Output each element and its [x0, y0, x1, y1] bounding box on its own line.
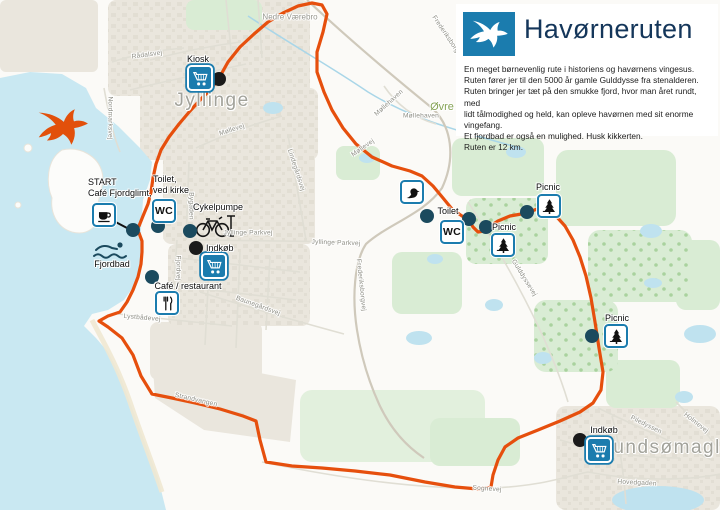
route-description-line: Ruten bringer jer tæt på den smukke fjor… — [464, 86, 714, 108]
route-logo — [463, 12, 515, 56]
route-description: En meget børnevenlig rute i historiens o… — [464, 64, 714, 154]
info-panel: Havørneruten En meget børnevenlig rute i… — [456, 4, 718, 136]
route-title: Havørneruten — [524, 14, 693, 45]
route-description-line: Ruten er 12 km. — [464, 142, 714, 153]
route-description-line: Ruten fører jer til den 5000 år gamle Gu… — [464, 75, 714, 86]
route-description-line: En meget børnevenlig rute i historiens o… — [464, 64, 714, 75]
route-description-line: Et fjordbad er også en mulighed. Husk ki… — [464, 131, 714, 142]
islet — [15, 202, 21, 208]
eagle-logo-icon — [469, 18, 509, 51]
islet — [24, 144, 32, 152]
island — [48, 149, 103, 233]
route-map-page: JyllingeGundsømagleNedre VærebroØvreRåda… — [0, 0, 720, 510]
route-description-line: lidt tålmodighed og held, kan opleve hav… — [464, 109, 714, 131]
